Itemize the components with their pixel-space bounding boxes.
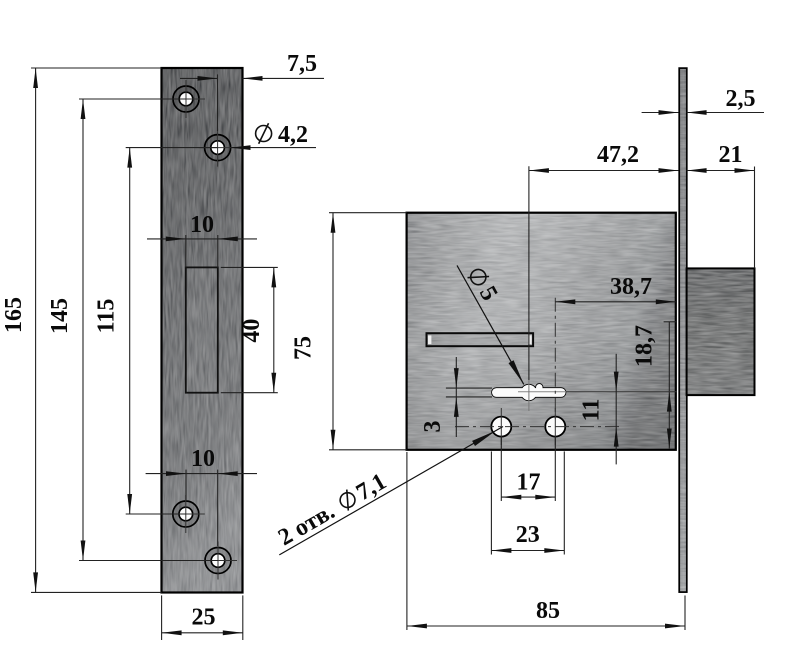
svg-text:17: 17	[517, 470, 541, 496]
svg-text:11: 11	[579, 399, 605, 422]
svg-text:18,7: 18,7	[631, 325, 657, 367]
svg-text:25: 25	[192, 605, 216, 631]
svg-text:10: 10	[190, 212, 214, 238]
svg-text:2,5: 2,5	[726, 86, 756, 112]
svg-text:75: 75	[291, 336, 317, 360]
svg-text:10: 10	[191, 446, 215, 472]
svg-text:21: 21	[719, 142, 743, 168]
svg-text:3: 3	[420, 421, 446, 433]
svg-text:165: 165	[1, 297, 27, 333]
svg-text:47,2: 47,2	[597, 142, 639, 168]
svg-text:85: 85	[536, 598, 560, 624]
svg-text:23: 23	[516, 522, 540, 548]
svg-text:40: 40	[239, 319, 265, 343]
svg-text:145: 145	[47, 298, 73, 334]
svg-text:7,5: 7,5	[287, 51, 317, 77]
svg-text:4,2: 4,2	[278, 122, 308, 148]
svg-text:38,7: 38,7	[610, 274, 652, 300]
svg-text:115: 115	[94, 299, 120, 334]
